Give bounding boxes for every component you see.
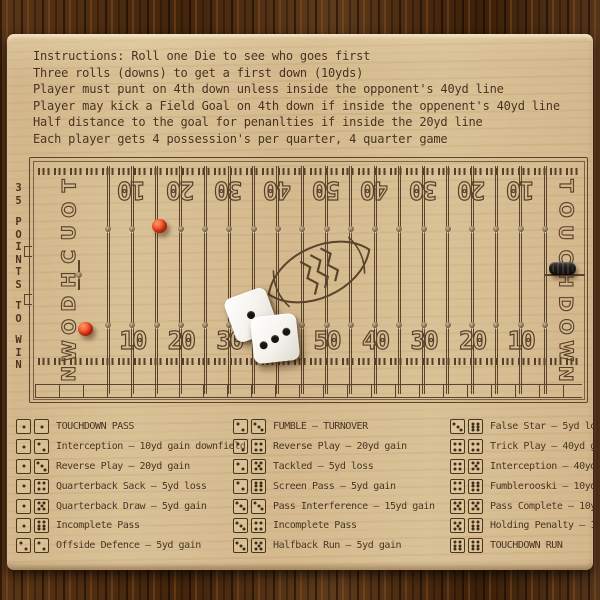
pip [257,425,260,428]
legend-label: False Star – 5yd loss [490,421,593,432]
legend-row: Quarterback Draw – 5yd gain [16,496,245,516]
die-icon [450,518,465,533]
die-icon [16,518,31,533]
football-field: TOUCHDOWN TOUCHDOWN 10102020303040405050… [29,157,588,403]
pip [43,448,46,451]
pip [459,488,462,491]
pip [242,527,245,530]
letter: N [15,254,21,267]
pip [459,527,462,530]
legend-row: Interception – 40yd gain [450,457,593,477]
die-icon [233,459,248,474]
instructions-line: Instructions: Roll one Die to see who go… [33,48,560,65]
pip [459,482,462,485]
yard-number: 20 [158,326,204,355]
die-icon [450,499,465,514]
pip [242,547,245,550]
yard-number: 30 [401,176,447,205]
pip [40,465,43,468]
pip [40,425,43,428]
pip [260,429,263,432]
pip [236,423,239,426]
pip [254,468,257,471]
peg-hole [542,226,548,232]
pip [242,448,245,451]
yard-number: 50 [304,326,350,355]
pip [37,482,40,485]
pip [22,465,25,468]
peg-hole [275,226,281,232]
pip [37,488,40,491]
endzone-peg-slot [78,260,80,290]
pip [459,521,462,524]
peg-hole [445,226,451,232]
pip [43,508,46,511]
pip [22,485,25,488]
peg-hole [226,226,232,232]
yard-number: 10 [498,176,544,205]
die-icon [450,538,465,553]
pip [453,422,456,425]
pip [22,445,25,448]
pip [242,508,245,511]
peg-hole [202,226,208,232]
instructions-line: Player must punt on 4th down unless insi… [33,81,560,98]
pip [236,541,239,544]
pip [459,448,462,451]
letter: W [554,340,578,361]
legend-label: TOUCHDOWN PASS [56,421,134,432]
pip [43,547,46,550]
legend-row: Trick Play – 40yd gain [450,437,593,457]
pip [37,462,40,465]
instructions-block: Instructions: Roll one Die to see who go… [33,48,560,147]
legend-label: Reverse Play – 20yd gain [273,441,407,452]
legend-label: Incomplete Pass [56,520,140,531]
pip [477,528,480,531]
letter: T [554,180,578,193]
legend-label: Pass Interference – 15yd gain [273,501,435,512]
die-icon [34,459,49,474]
pip [459,442,462,445]
pip [25,547,28,550]
pip [453,527,456,530]
pip [260,448,263,451]
legend-column-2: FUMBLE – TURNOVERReverse Play – 20yd gai… [233,417,435,556]
legend-label: FUMBLE – TURNOVER [273,421,368,432]
letter: U [554,225,578,240]
letter: T [15,300,21,313]
pip [239,524,242,527]
pip [459,462,462,465]
pip [239,505,242,508]
pip [477,548,480,551]
white-die-showing-3[interactable] [250,313,301,365]
pip [254,522,257,525]
die-icon [16,459,31,474]
pip [260,547,263,550]
die-icon [468,518,483,533]
pip [477,508,480,511]
yard-number: 10 [498,326,544,355]
legend-row: False Star – 5yd loss [450,417,593,437]
yard-number: 40 [352,176,398,205]
letter: O [554,319,578,335]
die-icon [450,439,465,454]
pip [456,425,459,428]
pip [19,541,22,544]
red-peg[interactable] [78,322,93,336]
pip [259,341,268,350]
pip [453,482,456,485]
yard-line [544,166,547,394]
legend-label: Interception – 10yd gain downfield [56,441,245,452]
pip [471,468,474,471]
letter: W [15,334,21,347]
legend-label: Reverse Play – 20yd gain [56,461,190,472]
touchdown-text-right: TOUCHDOWN [556,174,577,386]
legend-row: Tackled – 5yd loss [233,457,435,477]
pip [260,522,263,525]
pip [260,442,263,445]
die-icon [233,439,248,454]
pip [236,462,239,465]
black-peg[interactable] [549,262,576,275]
yard-number: 30 [206,176,252,205]
die-icon [233,479,248,494]
die-icon [450,479,465,494]
die-icon [233,419,248,434]
legend-label: Trick Play – 40yd gain [490,441,593,452]
wooden-game-board: Instructions: Roll one Die to see who go… [7,34,593,570]
pip [453,442,456,445]
die-icon [16,479,31,494]
letter: I [15,347,21,360]
letter: D [554,296,578,312]
instructions-line: Each player gets 4 possession's per quar… [33,131,560,148]
pip [453,448,456,451]
legend-row: Halfback Run – 5yd gain [233,536,435,556]
pip [471,528,474,531]
die-icon [34,499,49,514]
pip [254,501,257,504]
peg-hole [251,226,257,232]
legend-label: Interception – 40yd gain [490,461,593,472]
legend-label: Incomplete Pass [273,520,357,531]
peg-hole [421,226,427,232]
peg-hole [372,226,378,232]
pip [22,524,25,527]
letter: O [15,229,21,242]
pip [453,488,456,491]
legend-row: Fumblerooski – 10yd gain [450,476,593,496]
die-icon [468,479,483,494]
peg-hole [396,226,402,232]
legend-row: Pass Interference – 15yd gain [233,496,435,516]
letter: W [57,340,81,361]
die-icon [450,459,465,474]
die-icon [468,538,483,553]
die-icon [16,538,31,553]
pip [236,521,239,524]
pip [236,501,239,504]
pip [477,448,480,451]
die-icon [251,479,266,494]
letter: I [15,241,21,254]
die-icon [34,479,49,494]
instructions-line: Half distance to the goal for penanlties… [33,114,560,131]
legend-column-3: False Star – 5yd lossTrick Play – 40yd g… [450,417,593,556]
peg-hole [129,226,135,232]
legend-label: Holding Penalty – 10yd loss [490,520,593,531]
touchdown-text-left: TOUCHDOWN [59,174,80,386]
yard-number: 30 [401,326,447,355]
die-icon [16,439,31,454]
legend-label: Quarterback Sack – 5yd loss [56,481,206,492]
die-icon [34,419,49,434]
pip [282,327,291,336]
die-icon [34,518,49,533]
die-icon [251,419,266,434]
peg-hole [178,226,184,232]
pip [37,508,40,511]
die-icon [251,518,266,533]
pip [236,442,239,445]
pip [257,505,260,508]
legend-row: Screen Pass – 5yd gain [233,476,435,496]
die-icon [251,459,266,474]
pip [453,508,456,511]
yard-number: 10 [109,176,155,205]
pip [471,548,474,551]
instructions-line: Player may kick a Field Goal on 4th down… [33,98,560,115]
letter: T [15,266,21,279]
pip [43,468,46,471]
die-icon [251,439,266,454]
pip [477,468,480,471]
peg-hole [542,322,548,328]
pip [236,482,239,485]
die-icon [450,419,465,434]
pip [459,468,462,471]
legend-row: Interception – 10yd gain downfield [16,437,245,457]
pip [43,528,46,531]
die-icon [468,459,483,474]
pip [477,429,480,432]
pip [254,442,257,445]
pip [471,488,474,491]
pip [471,448,474,451]
die-icon [34,439,49,454]
pip [242,488,245,491]
pip [260,527,263,530]
red-peg[interactable] [152,219,167,233]
die-icon [468,499,483,514]
pip [477,462,480,465]
letter: P [15,216,21,229]
legend-row: Offside Defence – 5yd gain [16,536,245,556]
pip [453,462,456,465]
legend-row: Reverse Play – 20yd gain [233,437,435,457]
letter: O [15,313,21,326]
legend-row: TOUCHDOWN PASS [16,417,245,437]
legend-label: Screen Pass – 5yd gain [273,481,396,492]
pip [471,508,474,511]
letter: O [554,201,578,217]
pip [254,527,257,530]
pip [43,482,46,485]
pip [477,502,480,505]
die-icon [16,419,31,434]
die-icon [233,499,248,514]
letter: 3 [15,182,21,195]
pip [260,541,263,544]
die-icon [34,538,49,553]
pip [37,528,40,531]
yard-number: 50 [304,176,350,205]
photo-of-football-dice-board-game: { "instructions": { "lines": [ "Instruct… [0,0,600,600]
pip [254,422,257,425]
legend-label: Tackled – 5yd loss [273,461,373,472]
die-icon [468,419,483,434]
pip [43,502,46,505]
letter: N [15,359,21,372]
legend-label: Offside Defence – 5yd gain [56,540,201,551]
letter: S [15,279,21,292]
die-icon [16,499,31,514]
dice-legend: TOUCHDOWN PASSInterception – 10yd gain d… [7,417,593,562]
legend-label: Halfback Run – 5yd gain [273,540,401,551]
legend-row: Quarterback Sack – 5yd loss [16,476,245,496]
pip [459,548,462,551]
legend-label: Fumblerooski – 10yd gain [490,481,593,492]
letter: D [57,296,81,312]
goalpost-icon [24,246,32,257]
peg-hole [493,226,499,232]
yard-number: 20 [449,176,495,205]
peg-hole [518,226,524,232]
pip [254,547,257,550]
legend-row: FUMBLE – TURNOVER [233,417,435,437]
pip [242,428,245,431]
legend-label: Quarterback Draw – 5yd gain [56,501,206,512]
pip [477,488,480,491]
letter: N [554,366,578,382]
letter: 5 [15,195,21,208]
pip [22,425,25,428]
letter: U [57,225,81,240]
pip [43,488,46,491]
legend-row: Pass Complete – 10yd gain [450,496,593,516]
pip [260,462,263,465]
pip [260,468,263,471]
peg-hole [299,226,305,232]
yard-number: 40 [255,176,301,205]
die-icon [233,538,248,553]
points-to-win-label: 35POINTSTOWIN [10,182,27,372]
die-icon [251,499,266,514]
pip [459,508,462,511]
legend-row: TOUCHDOWN RUN [450,536,593,556]
pip [453,548,456,551]
letter: O [57,201,81,217]
die-icon [251,538,266,553]
legend-row: Incomplete Pass [233,516,435,536]
yard-number: 20 [449,326,495,355]
peg-hole [76,272,82,278]
yard-number: 10 [109,326,155,355]
legend-row: Reverse Play – 20yd gain [16,457,245,477]
pip [239,544,242,547]
legend-column-1: TOUCHDOWN PASSInterception – 10yd gain d… [16,417,245,556]
yard-number: 20 [158,176,204,205]
pip [459,502,462,505]
pip [254,448,257,451]
peg-hole [105,226,111,232]
pip [471,442,474,445]
pip [453,468,456,471]
legend-row: Holding Penalty – 10yd loss [450,516,593,536]
pip [37,541,40,544]
letter: T [57,180,81,193]
die-icon [468,439,483,454]
pip [471,429,474,432]
pip [459,429,462,432]
legend-label: TOUCHDOWN RUN [490,540,562,551]
legend-label: Pass Complete – 10yd gain [490,501,593,512]
pip [271,334,280,343]
pip [254,488,257,491]
pip [260,488,263,491]
pip [477,442,480,445]
pip [37,442,40,445]
instructions-line: Three rolls (downs) to get a first down … [33,65,560,82]
pip [260,508,263,511]
die-icon [233,518,248,533]
peg-hole [469,226,475,232]
letter: N [57,366,81,382]
endzone-left: TOUCHDOWN [30,162,108,398]
legend-row: Incomplete Pass [16,516,245,536]
pip [242,468,245,471]
endzone-right: TOUCHDOWN [545,162,587,398]
yard-number: 40 [352,326,398,355]
pip [22,505,25,508]
goalpost-icon [24,294,32,305]
